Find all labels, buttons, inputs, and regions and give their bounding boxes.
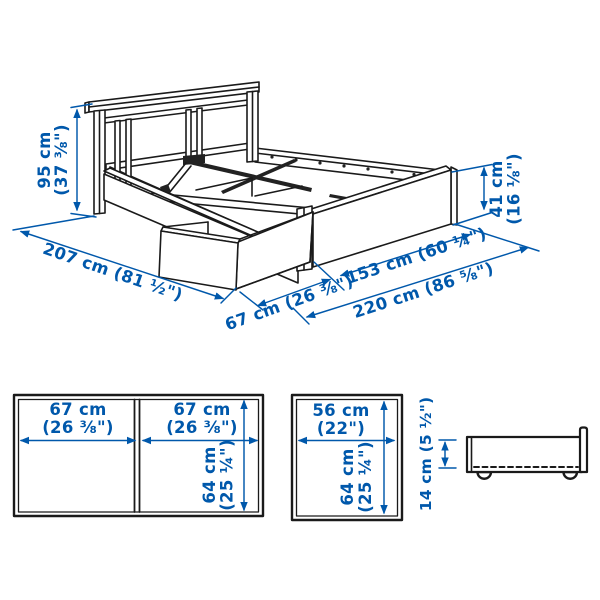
dimension-diagram-svg: 95 cm(37 ⅜") 207 cm (81 ½") 67 cm (26 ⅜"… [0,0,600,600]
single-drawer-front-view: 56 cm(22") 64 cm(25 ¼") [292,395,402,520]
drawer-pair-front-view: 67 cm(26 ⅜") 67 cm(26 ⅜") 64 cm(25 ¼") [14,395,263,516]
footboard-far-cap [451,167,457,225]
drawer-side-wall [236,212,313,289]
headboard-spindle [186,110,191,162]
footboard-height-label: 41 cm(16 ⅛") [487,153,524,225]
single-drawer-width-label: 56 cm(22") [312,401,369,438]
drawer-height-label: 64 cm(25 ¼") [200,439,237,511]
drawer-side-height-label: 14 cm (5 ½") [417,397,435,512]
product-dimension-diagram: 95 cm(37 ⅜") 207 cm (81 ½") 67 cm (26 ⅜"… [0,0,600,600]
dimension-annotations: 95 cm(37 ⅜") 207 cm (81 ½") 67 cm (26 ⅜"… [13,104,539,334]
drawer-back-lip [580,428,587,473]
single-drawer-height-label: 64 cm(25 ¼") [338,441,375,513]
drawer-side-view: 14 cm (5 ½") [417,397,587,512]
headboard-spindle [197,108,202,161]
right-drawer-width-label: 67 cm(26 ⅜") [166,400,238,437]
left-drawer-width-label: 67 cm(26 ⅜") [42,400,114,437]
dimension-lines [13,104,539,324]
bed-height-label: 95 cm(37 ⅜") [35,124,71,196]
